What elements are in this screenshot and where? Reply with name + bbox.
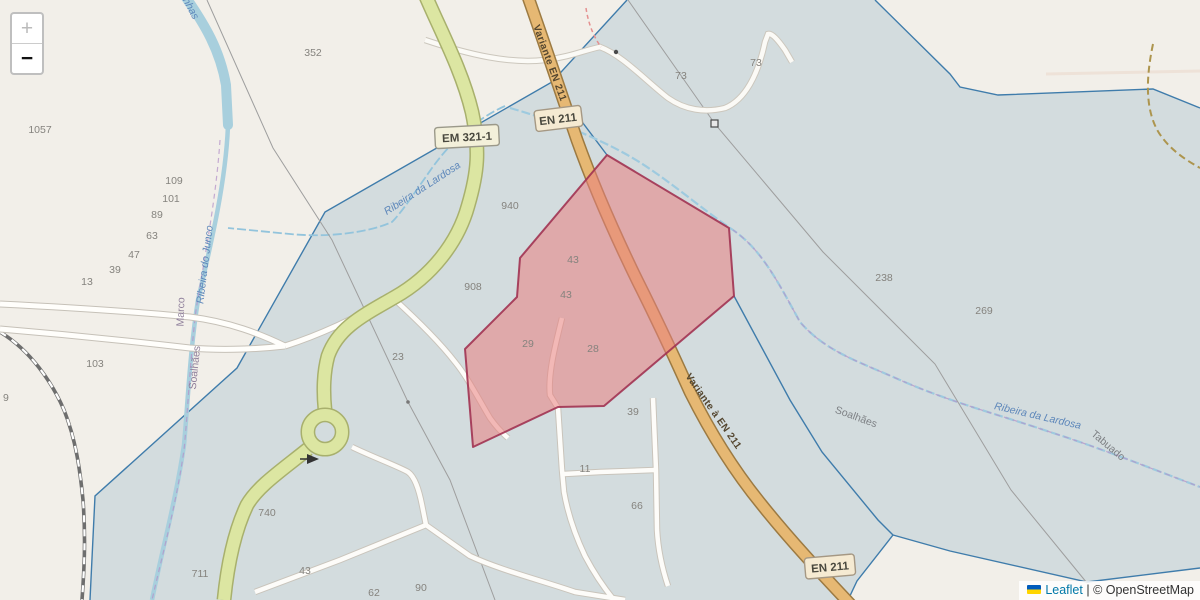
zoom-in-button[interactable]: +	[12, 14, 42, 43]
parcel-number: 1057	[28, 124, 52, 136]
parcel-number: 73	[750, 57, 762, 69]
power-pole-icon	[406, 400, 410, 404]
parcel-number: 11	[580, 463, 591, 475]
parcel-number: 43	[299, 565, 311, 577]
parcel-number: 740	[258, 507, 276, 519]
parcel-number: 101	[162, 193, 180, 205]
parcel-number: 908	[464, 281, 482, 293]
parcel-number: 940	[501, 200, 519, 212]
barrier-icon	[711, 120, 718, 127]
parcel-number: 43	[567, 254, 579, 266]
parcel-number: 89	[151, 209, 163, 221]
parcel-number: 352	[304, 47, 322, 59]
parcel-number: 711	[192, 568, 209, 580]
parcel-number: 23	[392, 351, 404, 363]
parcel-number: 66	[631, 500, 643, 512]
parcel-number: 47	[128, 249, 140, 261]
osm-attribution[interactable]: © OpenStreetMap	[1093, 583, 1194, 597]
parcel-number: 39	[627, 406, 639, 418]
parcel-number: 269	[975, 305, 993, 317]
attribution-separator: |	[1086, 583, 1089, 597]
leaflet-attribution-link[interactable]: Leaflet	[1027, 583, 1083, 597]
parcel-number: 63	[146, 230, 158, 242]
parcel-number: 109	[165, 175, 183, 187]
map-container[interactable]: 352 1057 109 101 89 63 47 39 13 103 9 23…	[0, 0, 1200, 600]
map-canvas[interactable]: 352 1057 109 101 89 63 47 39 13 103 9 23…	[0, 0, 1200, 600]
parcel-number: 73	[675, 70, 687, 82]
zoom-out-button[interactable]: −	[12, 43, 42, 73]
parcel-number: 28	[587, 343, 599, 355]
parcel-number: 43	[560, 289, 572, 301]
road-badge-em321: EM 321-1	[434, 124, 499, 148]
attribution-bar: Leaflet | © OpenStreetMap	[1019, 581, 1200, 600]
gate-icon	[614, 50, 618, 54]
parcel-number: 62	[368, 587, 380, 599]
parcel-number: 90	[415, 582, 427, 594]
parcel-number: 238	[875, 272, 893, 284]
parcel-number: 9	[3, 392, 9, 404]
parcel-number: 29	[522, 338, 534, 350]
ukraine-flag-icon	[1027, 585, 1041, 594]
zoom-control: + −	[10, 12, 44, 75]
parcel-number: 13	[81, 276, 93, 288]
admin-label-marco: Marco	[174, 297, 187, 327]
road-badge-en211-bottom: EN 211	[804, 554, 856, 579]
parcel-number: 103	[86, 358, 104, 370]
parcel-number: 39	[109, 264, 121, 276]
